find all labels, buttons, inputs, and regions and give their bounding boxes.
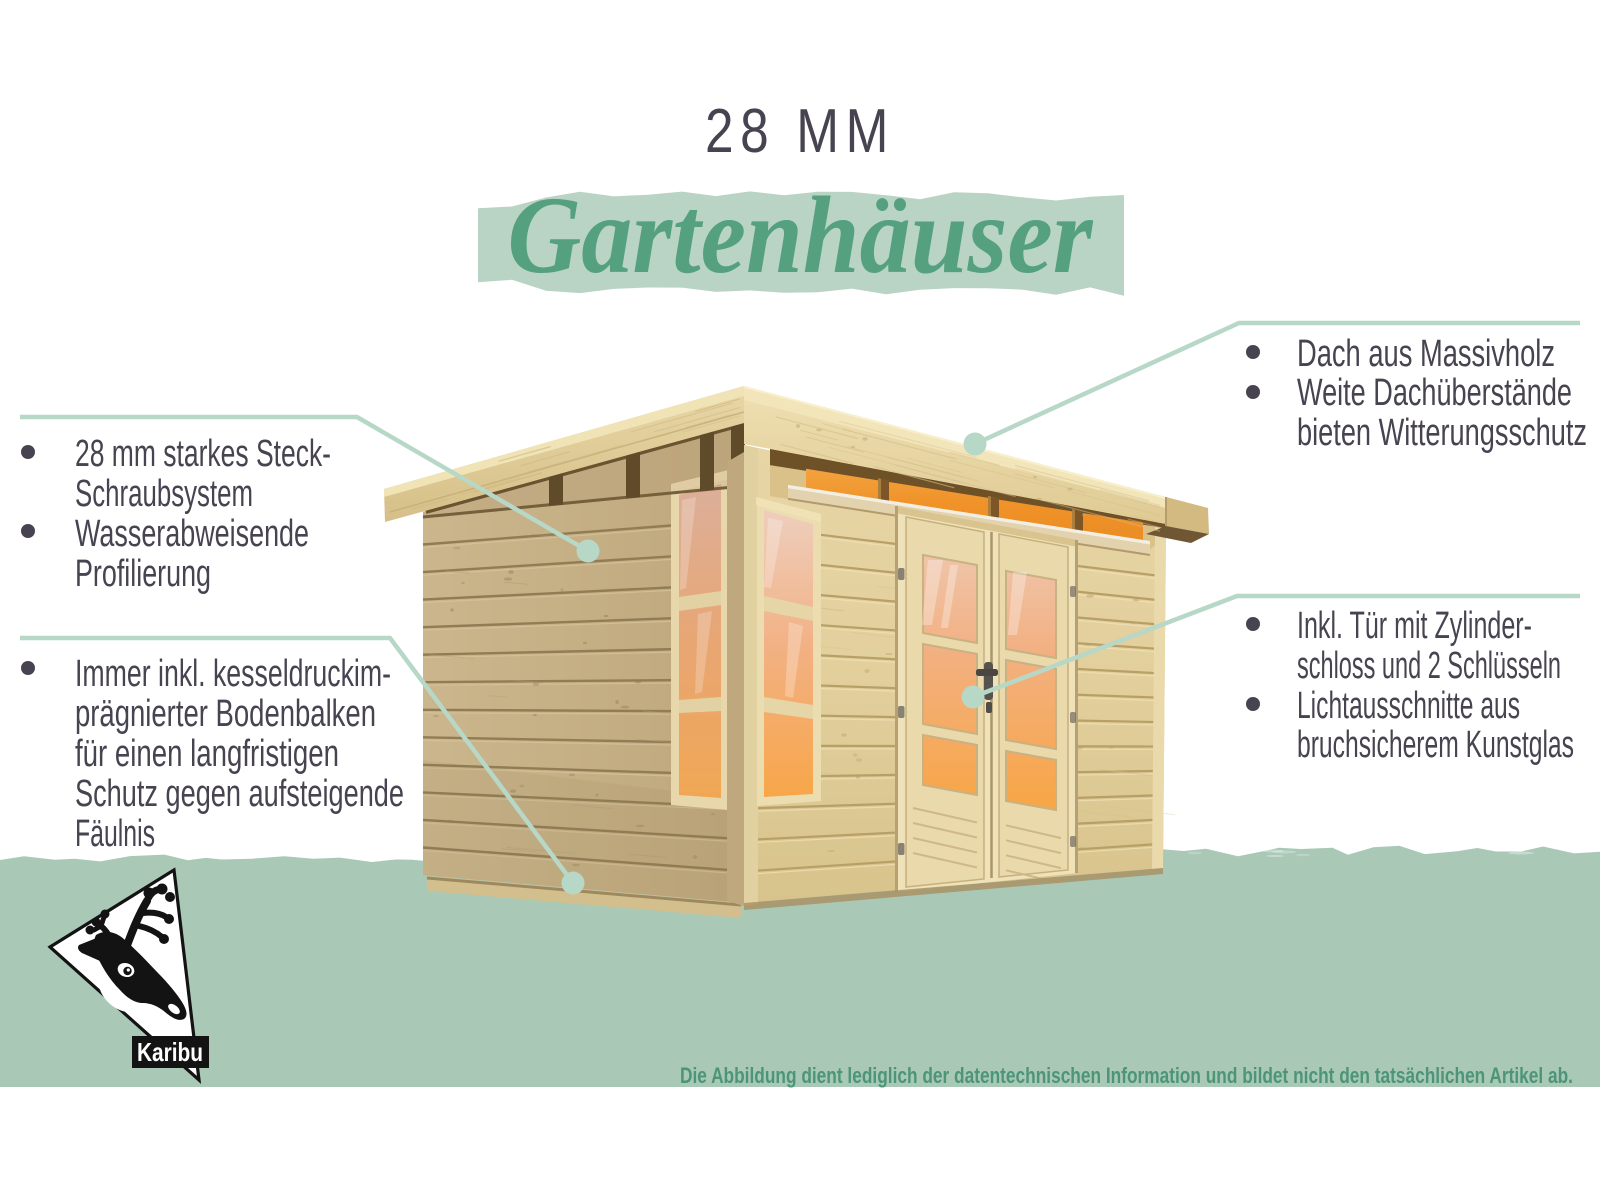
svg-text:Profilierung: Profilierung <box>75 553 211 595</box>
svg-text:Schutz gegen aufsteigende: Schutz gegen aufsteigende <box>75 773 404 815</box>
svg-text:Schraubsystem: Schraubsystem <box>75 473 253 515</box>
svg-text:Inkl. Tür mit Zylinder-: Inkl. Tür mit Zylinder- <box>1297 605 1532 647</box>
svg-text:Karibu: Karibu <box>137 1037 203 1067</box>
svg-text:Dach aus Massivholz: Dach aus Massivholz <box>1297 333 1555 375</box>
svg-text:Wasserabweisende: Wasserabweisende <box>75 513 309 555</box>
svg-text:Fäulnis: Fäulnis <box>75 813 155 855</box>
svg-text:bieten Witterungsschutz: bieten Witterungsschutz <box>1297 412 1587 454</box>
svg-text:28 MM: 28 MM <box>705 97 895 166</box>
svg-text:Die Abbildung dient lediglich: Die Abbildung dient lediglich der datent… <box>680 1063 1573 1088</box>
svg-text:schloss und 2 Schlüsseln: schloss und 2 Schlüsseln <box>1297 645 1561 687</box>
svg-text:28 mm starkes Steck-: 28 mm starkes Steck- <box>75 433 331 475</box>
svg-text:Gartenhäuser: Gartenhäuser <box>508 174 1094 296</box>
svg-text:prägnierter Bodenbalken: prägnierter Bodenbalken <box>75 693 376 735</box>
svg-text:Lichtausschnitte aus: Lichtausschnitte aus <box>1297 685 1520 727</box>
svg-text:Weite Dachüberstände: Weite Dachüberstände <box>1297 372 1572 414</box>
svg-text:für einen langfristigen: für einen langfristigen <box>75 733 339 775</box>
svg-text:bruchsicherem Kunstglas: bruchsicherem Kunstglas <box>1297 724 1574 766</box>
svg-text:Immer inkl. kesseldruckim-: Immer inkl. kesseldruckim- <box>75 653 391 695</box>
